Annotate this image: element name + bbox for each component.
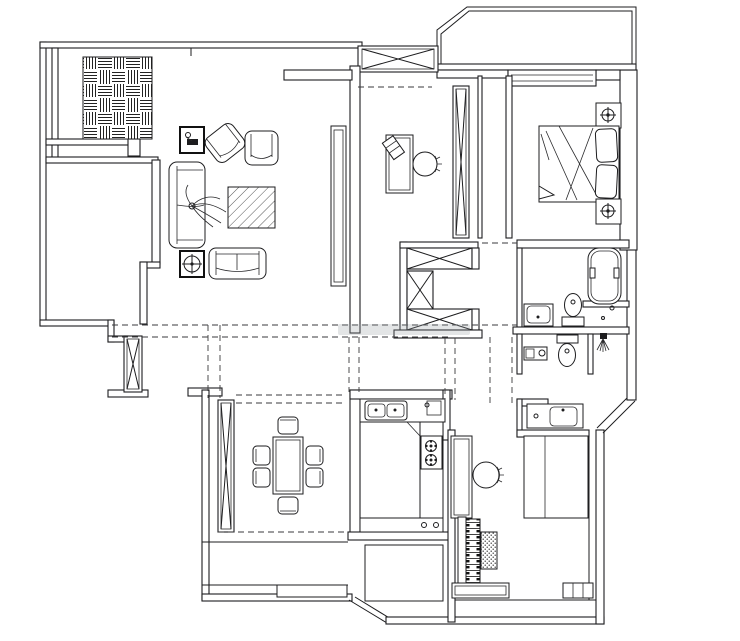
armchair (245, 131, 278, 165)
side-table-lamp-icon (180, 127, 204, 153)
side-table-crosshair-icon (180, 251, 204, 277)
shelf (452, 583, 509, 598)
dining-chair (253, 468, 270, 487)
sofa (169, 162, 205, 248)
dining-chair (278, 497, 298, 514)
pillow (595, 164, 618, 198)
double-sink (365, 401, 407, 420)
counter-bottom (360, 518, 443, 532)
dining-table (273, 437, 303, 494)
bathroom (513, 240, 629, 437)
shelf (524, 347, 547, 360)
double-bed (539, 126, 619, 202)
parquet-closet (83, 57, 152, 139)
desk (382, 135, 413, 193)
gas-stove-2-burner (421, 436, 442, 469)
dining-chair (306, 446, 323, 465)
wash-basin (524, 304, 553, 326)
tv-cabinet (331, 126, 346, 286)
watermark-smudge (338, 324, 470, 335)
living-room (46, 48, 360, 333)
wardrobe (524, 436, 588, 518)
shower-head-icon (597, 333, 609, 352)
radiator (563, 583, 593, 598)
shaft-x-box-left (407, 271, 433, 309)
kitchen (348, 390, 454, 601)
bathtub (588, 248, 621, 304)
shaft-x-box-top (407, 248, 472, 269)
pillow (595, 128, 618, 162)
floor-plan-canvas (0, 0, 740, 641)
dotted-stool (481, 532, 497, 569)
dining-chair (278, 417, 298, 434)
nightstand-lamp-icon (596, 199, 621, 224)
bedroom-window-band (508, 70, 596, 86)
elevator-shaft (394, 242, 482, 338)
dining-room (218, 400, 323, 532)
rug-diagonal-hatch (228, 187, 275, 228)
study (382, 76, 512, 238)
porch-step (277, 585, 347, 597)
toilet (562, 294, 584, 327)
desk (451, 436, 472, 518)
piano-room (448, 430, 596, 622)
wash-basin (527, 404, 583, 428)
desk-chair (413, 152, 442, 176)
master-bedroom (539, 103, 621, 224)
floor-plan-drawing (0, 0, 740, 641)
top-window-x-box (358, 46, 438, 72)
dining-chair (253, 446, 270, 465)
left-window-x-column (124, 336, 142, 392)
dining-chair (306, 468, 323, 487)
toilet (557, 335, 578, 367)
nightstand-lamp-icon (596, 103, 621, 128)
piano-keys (458, 517, 480, 585)
study-window-x-column (453, 86, 469, 238)
dining-window-x-column (218, 400, 234, 532)
armchair (202, 121, 247, 166)
entry-hall (365, 545, 443, 601)
balcony (437, 7, 636, 86)
loveseat (209, 248, 266, 279)
desk-chair (473, 462, 504, 488)
